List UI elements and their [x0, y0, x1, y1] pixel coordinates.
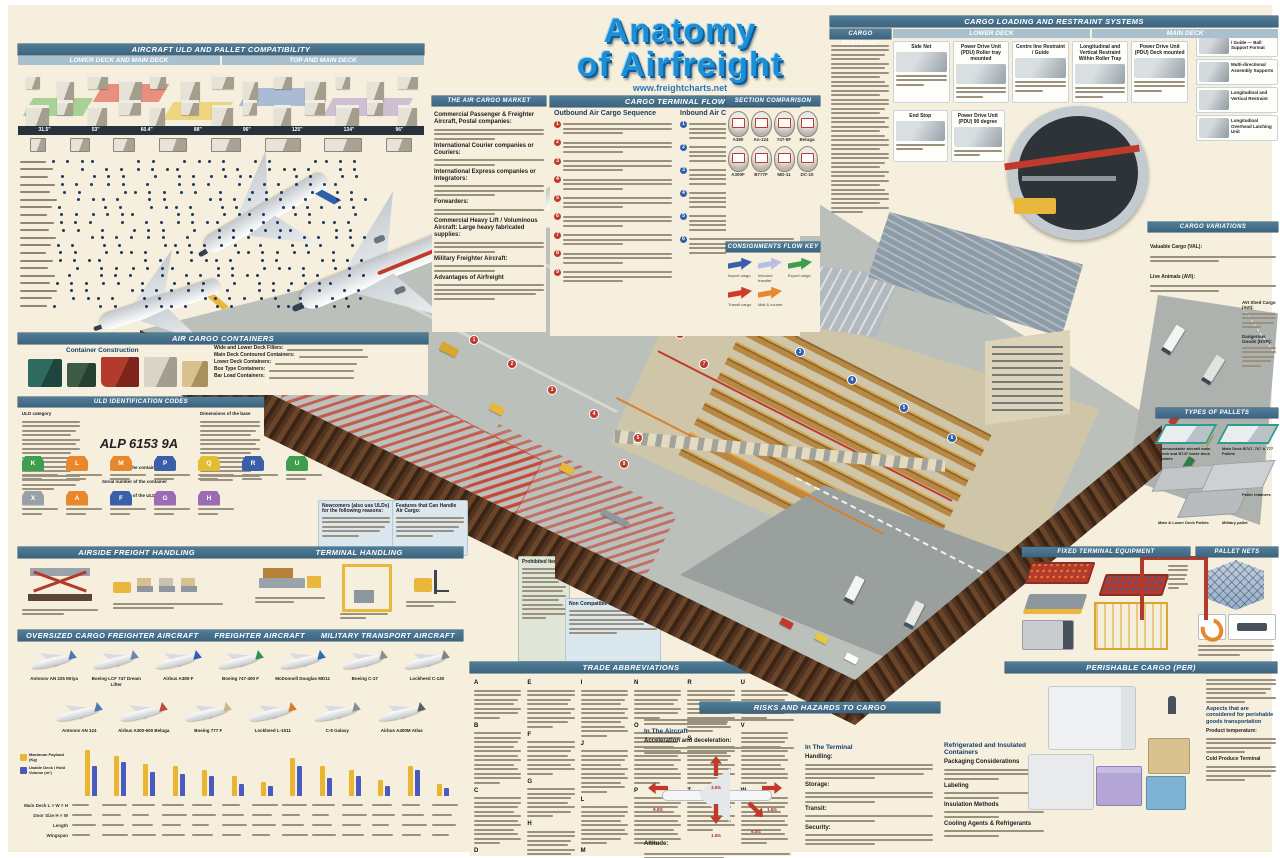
matrix-cell: [184, 236, 191, 239]
matrix-cell: [227, 259, 234, 262]
text-line: [522, 599, 559, 601]
compatibility-dot: [187, 282, 190, 285]
net-ratchet-box: [1228, 614, 1276, 640]
compatibility-dot: [283, 168, 286, 171]
matrix-cell: [129, 213, 136, 216]
outbound-step-marker: 2: [508, 360, 516, 368]
compatibility-dot: [60, 221, 63, 224]
contour-chip-cell: H: [198, 491, 234, 518]
text-line: [434, 133, 544, 135]
matrix-cell: [55, 244, 62, 247]
compatibility-dot: [268, 168, 271, 171]
restraint-card-text: [954, 150, 1003, 157]
outbound-step-marker: 3: [548, 386, 556, 394]
matrix-cell: [176, 183, 183, 186]
text-line: [831, 130, 880, 132]
text-line: [434, 251, 495, 253]
matrix-cell: [236, 213, 243, 216]
text-line: [474, 690, 521, 692]
aircraft-silhouette: [177, 696, 240, 728]
text-line: [1150, 285, 1276, 287]
risk-text: [644, 747, 794, 754]
abbreviation-letter: J: [581, 740, 628, 748]
compatibility-dot: [118, 244, 121, 247]
compatibility-dot: [198, 160, 201, 163]
variation-side-text: [1242, 347, 1276, 367]
flow-step: 8: [554, 250, 672, 266]
cross-section-cell: MD-11: [774, 146, 794, 178]
abbreviation-letter: I: [581, 679, 628, 687]
matrix-cell: [99, 236, 106, 239]
matrix-cell: [73, 183, 80, 186]
contour-chip: L: [66, 456, 88, 471]
transporter-deck: [259, 578, 305, 588]
step-number-badge: 8: [554, 250, 561, 257]
text-line: [527, 806, 574, 808]
compatibility-dot: [122, 183, 125, 186]
text-line: [474, 782, 500, 784]
red-arrow-icon: [710, 756, 722, 776]
matrix-cell: [120, 175, 127, 178]
step-text: [563, 139, 672, 155]
volume-bar: [268, 786, 273, 796]
matrix-cell: [122, 191, 129, 194]
contour-chip: Q: [198, 456, 220, 471]
text-line: [563, 188, 623, 190]
container-icon: [101, 357, 139, 387]
payload-bar: [232, 776, 237, 796]
compatibility-dot: [258, 282, 261, 285]
compatibility-dot: [70, 282, 73, 285]
compatibility-dot: [119, 206, 122, 209]
spec-value: [132, 804, 155, 806]
text-line: [563, 197, 672, 199]
matrix-cell: [277, 191, 284, 194]
matrix-cell: [189, 221, 196, 224]
compatibility-dot: [238, 213, 241, 216]
matrix-cell: [197, 274, 204, 277]
text-line: [831, 171, 889, 173]
gforce-value: 9.0G: [653, 807, 663, 812]
restraint-card-title: Power Drive Unit (PDU) 90 degree: [954, 113, 1003, 125]
matrix-cell: [226, 297, 233, 300]
text-line: [474, 829, 514, 831]
compatibility-dot: [88, 259, 91, 262]
compatibility-dot: [77, 229, 80, 232]
compatibility-dot: [336, 191, 339, 194]
volume-bar: [356, 776, 361, 796]
matrix-cell: [61, 191, 68, 194]
text-line: [200, 443, 256, 445]
panel-uld-compatibility: AIRCRAFT ULD AND PALLET COMPATIBILITY LO…: [18, 40, 424, 335]
compatibility-dot: [74, 251, 77, 254]
contour-chip-cell: Q: [198, 456, 234, 483]
risk-term: Acceleration and deceleration:: [644, 738, 794, 745]
text-line: [527, 853, 571, 855]
compatibility-dot: [93, 175, 96, 178]
matrix-cell: [83, 289, 90, 292]
dolly-icon: [159, 586, 175, 592]
compatibility-dot: [339, 160, 342, 163]
flow-key-item: Inbound transfer: [758, 258, 784, 283]
text-line: [896, 144, 945, 146]
text-line: [805, 792, 933, 794]
size-label: 125": [292, 126, 303, 135]
text-line: [434, 298, 495, 300]
matrix-cell: [72, 251, 79, 254]
matrix-cell: [158, 305, 165, 308]
step-text: [563, 232, 672, 248]
matrix-cell: [76, 191, 83, 194]
compatibility-dot: [362, 274, 365, 277]
matrix-cell: [344, 259, 351, 262]
contour-caption: [66, 508, 102, 515]
text-line: [527, 755, 567, 757]
compatibility-dot: [249, 175, 252, 178]
matrix-cell: [266, 160, 273, 163]
refrig-subhead: Cooling Agents & Refrigerants: [944, 821, 1044, 828]
compatibility-dot: [217, 274, 220, 277]
transporter-cab: [307, 576, 321, 588]
flow-arrow-icon: [728, 285, 752, 301]
matrix-cell: [358, 259, 365, 262]
compatibility-dot: [234, 244, 237, 247]
compatibility-dot: [305, 244, 308, 247]
compatibility-dot: [120, 251, 123, 254]
compatibility-dot: [217, 267, 220, 270]
spec-value: [432, 824, 456, 826]
uld-example-code: ALP 6153 9A: [84, 437, 194, 451]
restraint-diagram-label: Longitudinal Overhead Latching Unit: [1231, 118, 1275, 138]
compatibility-dot: [272, 289, 275, 292]
matrix-cell: [204, 221, 211, 224]
fuselage-cross-section-icon: [774, 111, 795, 137]
aircraft-silhouette: [335, 644, 395, 676]
uld-container-box: [212, 74, 234, 89]
text-line: [1150, 260, 1219, 262]
matrix-row: [20, 158, 422, 166]
compatibility-dot: [68, 274, 71, 277]
compatibility-dot: [100, 274, 103, 277]
matrix-cell: [252, 160, 259, 163]
text-line: [581, 815, 625, 817]
text-line: [563, 132, 623, 134]
container-icon: [67, 363, 97, 387]
matrix-cell: [98, 274, 105, 277]
compatibility-dot: [120, 168, 123, 171]
aircraft-cell: Airbus A400M Atlas: [371, 696, 434, 734]
text-line: [805, 777, 875, 779]
payload-volume-pair: [201, 770, 215, 796]
matrix-cell: [91, 175, 98, 178]
compatibility-dot: [247, 236, 250, 239]
compatibility-dot: [75, 213, 78, 216]
text-line: [805, 764, 933, 766]
spec-row-label: Wingspan: [20, 833, 70, 838]
uld-container-box: [150, 74, 166, 89]
aircraft-silhouette: [242, 696, 305, 728]
matrix-row: [20, 280, 422, 288]
compatibility-dot: [91, 160, 94, 163]
text-line: [581, 773, 625, 775]
container-icon: [113, 138, 135, 152]
compatibility-dot: [334, 183, 337, 186]
flow-step: 6: [554, 213, 672, 229]
text-line: [1075, 96, 1103, 98]
gantry-frame: [342, 564, 392, 612]
matrix-cell: [215, 274, 222, 277]
uld-container-box: [212, 105, 233, 127]
text-line: [831, 166, 880, 168]
aircraft-cell: Boeing 747-400 F: [210, 644, 270, 687]
matrix-cell: [248, 229, 255, 232]
text-line: [581, 791, 607, 793]
contour-caption: [242, 474, 278, 481]
fuselage-cross-section-icon: [751, 146, 772, 172]
compatibility-dot: [302, 267, 305, 270]
matrix-cell: [146, 191, 153, 194]
payload-bar: [408, 766, 413, 796]
matrix-cell: [259, 259, 266, 262]
text-line: [1206, 751, 1245, 753]
compatibility-dot: [141, 282, 144, 285]
matrix-cell: [276, 236, 283, 239]
flow-key-items: Import cargo Inbound transfer Export car…: [728, 258, 820, 307]
compatibility-dot: [228, 297, 231, 300]
matrix-cell: [361, 236, 368, 239]
compatibility-dot: [359, 297, 362, 300]
aircraft-row-1: Antonov AN 225 Mriya Boeing LCF 747 Drea…: [24, 644, 457, 687]
text-line: [563, 142, 672, 144]
compatibility-dot: [229, 259, 232, 262]
compatibility-dot: [145, 221, 148, 224]
compatibility-dot: [148, 191, 151, 194]
airside-equipment-row: [18, 560, 463, 628]
matrix-cell: [254, 274, 261, 277]
payload-volume-pair: [319, 766, 333, 796]
matrix-cell: [132, 191, 139, 194]
uld-container-box: [181, 100, 199, 115]
compatibility-dot: [105, 251, 108, 254]
text-line: [269, 377, 354, 379]
payload-bar: [173, 766, 178, 796]
aircraft-row-label: [20, 260, 53, 262]
matrix-cell: [331, 305, 338, 308]
compatibility-dot: [102, 198, 105, 201]
text-line: [563, 128, 672, 130]
cool-box-icon: [1096, 766, 1142, 806]
text-line: [831, 99, 889, 101]
text-line: [1242, 322, 1274, 324]
compatibility-dot: [202, 282, 205, 285]
matrix-cell: [88, 183, 95, 186]
compatibility-dot: [208, 160, 211, 163]
market-text: Commercial Passenger & Freighter Aircraf…: [434, 109, 544, 302]
abbreviation-entries: [581, 690, 628, 737]
matrix-cell: [109, 297, 116, 300]
compatibility-dot: [318, 289, 321, 292]
matrix-cell: [119, 221, 126, 224]
matrix-cell: [89, 236, 96, 239]
compatibility-dot: [350, 198, 353, 201]
compatibility-dot: [81, 168, 84, 171]
perishable-band: PERISHABLE CARGO (PER): [1005, 662, 1277, 673]
text-line: [474, 717, 500, 719]
non-compatible-box: Non Compatible Loads:: [565, 598, 661, 662]
spec-value: [102, 804, 127, 806]
pallet-label: Main Deck B747, 767 & 777 Pallets: [1222, 446, 1274, 456]
matrix-cell: [261, 267, 268, 270]
compatibility-dot: [133, 229, 136, 232]
aircraft-cell: Lockheed C-130: [397, 644, 457, 687]
compatibility-dot: [279, 229, 282, 232]
text-line: [569, 632, 617, 634]
restraint-card-text: [956, 87, 1007, 98]
restraint-card-text: [896, 144, 945, 151]
matrix-cell: [66, 274, 73, 277]
text-line: [1206, 697, 1276, 699]
compatibility-dot: [321, 259, 324, 262]
outbound-heading: Outbound Air Cargo Sequence: [554, 110, 672, 118]
uld-container-box: [150, 105, 165, 127]
abbreviation-entries: [474, 732, 521, 784]
compatibility-dot: [75, 183, 78, 186]
poster-title-line1: Anatomy: [545, 14, 815, 48]
text-line: [1206, 701, 1245, 703]
matrix-row: [20, 264, 422, 272]
matrix-cell: [270, 282, 277, 285]
legend-label: Maximum Payload (Kg): [29, 752, 72, 762]
oversized-cargo-title: OVERSIZED CARGO FREIGHTER AIRCRAFT: [26, 630, 199, 641]
compatibility-dot: [92, 198, 95, 201]
compatibility-dot: [78, 191, 81, 194]
compatibility-dot: [147, 236, 150, 239]
text-line: [287, 349, 362, 351]
perishable-term: Product temperature:: [1206, 728, 1276, 735]
spec-value: [402, 824, 427, 826]
fuselage-cross-section-icon: [797, 146, 818, 172]
compatibility-dot: [294, 213, 297, 216]
matrix-cell: [54, 282, 61, 285]
text-line: [956, 91, 1007, 93]
aircraft-name: Lockheed C-130: [397, 676, 457, 682]
compatibility-dot: [77, 198, 80, 201]
matrix-cell: [313, 305, 320, 308]
container-icon: [182, 361, 208, 387]
text-line: [22, 448, 80, 450]
text-line: [22, 434, 71, 436]
matrix-cell: [287, 229, 294, 232]
text-line: [110, 513, 130, 515]
compatibility-dot: [185, 274, 188, 277]
text-line: [322, 526, 385, 528]
matrix-row: [20, 257, 422, 265]
text-line: [1206, 742, 1276, 744]
text-line: [569, 614, 657, 616]
payload-volume-bars: [76, 748, 458, 796]
risks-intro: [644, 719, 794, 726]
cross-section-cell: A300F: [728, 146, 748, 178]
gforce-value: 1.5G: [767, 807, 777, 812]
perishable-text: [1206, 738, 1276, 754]
matrix-cell: [160, 229, 167, 232]
aircraft-row-label: [20, 184, 55, 186]
compatibility-dot: [143, 297, 146, 300]
text-line: [563, 243, 623, 245]
compatibility-dot: [219, 191, 222, 194]
matrix-cell: [161, 191, 168, 194]
fuselage-cross-section-icon: [774, 146, 795, 172]
spec-value: [132, 814, 149, 816]
payload-volume-pair: [84, 750, 98, 796]
compatibility-dot: [177, 221, 180, 224]
equipment-caption: [406, 598, 456, 610]
restraint-cards-top: Side Net Power Drive Unit (PDU) Roller t…: [893, 41, 1188, 103]
net-spreader-frame-icon: [1140, 556, 1208, 620]
matrix-row: [20, 272, 422, 280]
text-line: [831, 94, 880, 96]
poster-title-block: Anatomy of Airfreight www.freightcharts.…: [545, 14, 815, 100]
restraint-card: End Stop: [893, 110, 948, 162]
text-line: [474, 820, 518, 822]
aircraft-row-label: [20, 267, 48, 269]
compatibility-dot: [278, 236, 281, 239]
text-line: [581, 694, 628, 696]
compatibility-dot: [61, 175, 64, 178]
compatibility-dot: [171, 267, 174, 270]
aircraft-row-label: [20, 290, 57, 292]
compatibility-dot: [131, 289, 134, 292]
matrix-cell: [217, 191, 224, 194]
text-line: [527, 699, 571, 701]
payload-volume-pair: [289, 758, 303, 796]
text-line: [944, 811, 1044, 813]
compatibility-dot: [308, 213, 311, 216]
compatibility-dot: [256, 274, 259, 277]
matrix-cell: [58, 213, 65, 216]
text-line: [581, 755, 628, 757]
spec-value: [402, 814, 424, 816]
compatibility-dot: [301, 305, 304, 308]
container-icon: [386, 138, 412, 152]
compatibility-dot: [303, 236, 306, 239]
spec-value: [192, 804, 212, 806]
step-number-badge: 4: [554, 176, 561, 183]
aircraft-cell: Boeing LCF 747 Dream Lifter: [86, 644, 146, 687]
matrix-cell: [206, 160, 213, 163]
text-line: [434, 209, 544, 211]
matrix-cell: [218, 244, 225, 247]
matrix-row: [20, 287, 422, 295]
matrix-cell: [293, 183, 300, 186]
features-title: Features that Can Handle Air Cargo:: [396, 504, 464, 514]
market-term: Military Freighter Aircraft:: [434, 256, 544, 263]
matrix-cell: [59, 175, 66, 178]
compatibility-dot: [226, 289, 229, 292]
text-line: [896, 84, 924, 86]
insulated-container-icon: [1048, 686, 1136, 750]
text-line: [634, 694, 681, 696]
matrix-cell: [131, 229, 138, 232]
abbreviation-letter: R: [687, 679, 734, 687]
matrix-cell: [156, 259, 163, 262]
restraint-diagram-image: [1199, 90, 1229, 110]
compatibility-dot: [248, 198, 251, 201]
matrix-cell: [245, 236, 252, 239]
compatibility-dot: [363, 236, 366, 239]
compatibility-dot: [345, 297, 348, 300]
matrix-cell: [277, 198, 284, 201]
